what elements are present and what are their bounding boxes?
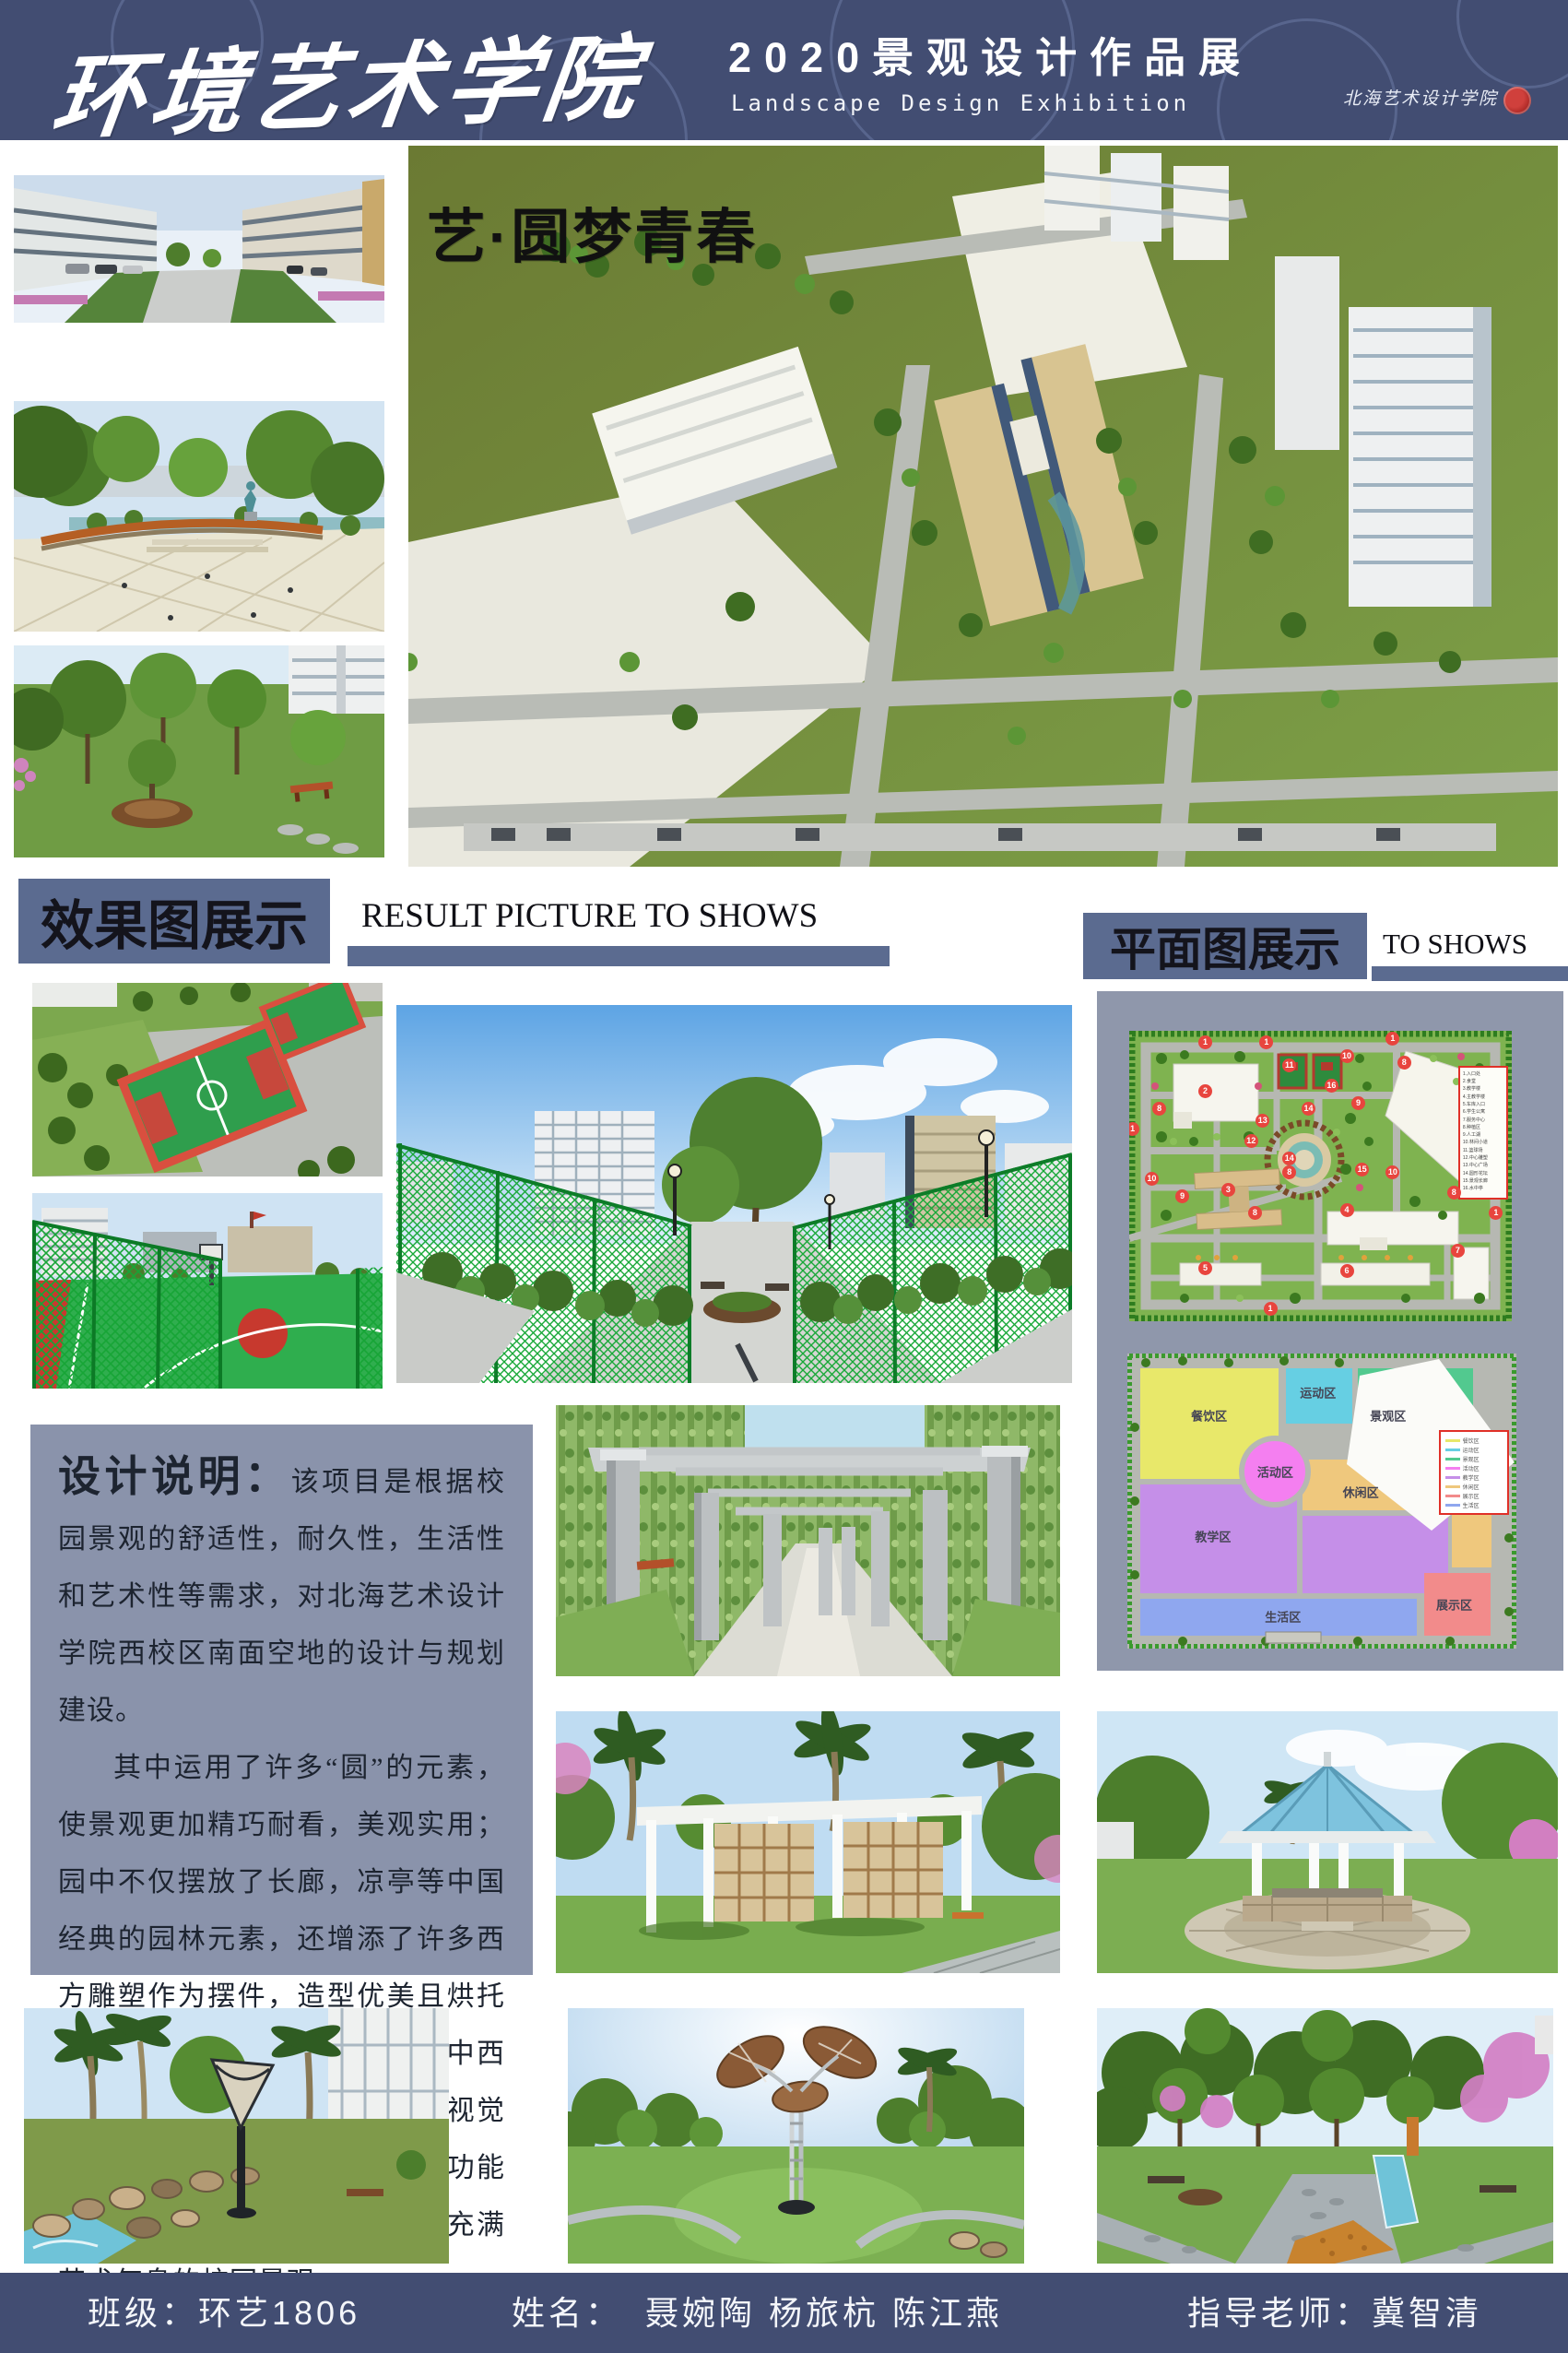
zone-legend-label: 餐饮区 — [1463, 1437, 1480, 1445]
render-pergola-corridor — [556, 1405, 1060, 1676]
college-title: 环境艺术学院 — [45, 3, 651, 140]
plans-panel: 1.入口处2.食堂3.教学楼4.主教学楼5.车库入口6.学生公寓7.服务中心8.… — [1097, 991, 1563, 1671]
zone-legend-label: 活动区 — [1463, 1464, 1480, 1472]
zone-label: 景观区 — [1370, 1407, 1406, 1425]
zone-legend-label: 景观区 — [1463, 1455, 1480, 1463]
exhibition-title-cn: 2020景观设计作品展 — [728, 24, 1253, 84]
zone-legend-label: 教学区 — [1463, 1473, 1480, 1482]
render-garden-path — [1097, 2008, 1553, 2264]
plan-marker: 1 — [1385, 1032, 1399, 1046]
site-plan-markers: 111111234567888889910101011121314141516 — [1129, 1031, 1512, 1321]
footer-bar: 班级：环艺1806 姓名： 聂婉陶 杨旅杭 陈江燕 指导老师：冀智清 — [0, 2273, 1568, 2353]
zoning-legend-row: 展示区 — [1445, 1491, 1503, 1500]
zone-color-swatch — [1445, 1495, 1460, 1497]
render-lawn-garden — [14, 645, 384, 857]
design-note-panel: 设计说明：该项目是根据校园景观的舒适性，耐久性，生活性和艺术性等需求，对北海艺术… — [30, 1425, 533, 1975]
zoning-legend-row: 景观区 — [1445, 1454, 1503, 1463]
render-court-fence — [32, 1193, 383, 1389]
zone-color-swatch — [1445, 1476, 1460, 1479]
plan-marker: 14 — [1302, 1102, 1315, 1116]
zone-label: 休闲区 — [1343, 1484, 1379, 1501]
results-title-en: RESULT PICTURE TO SHOWS — [361, 896, 818, 936]
footer-name-label: 姓名： — [512, 2273, 622, 2353]
plans-underline-bar — [1372, 966, 1568, 981]
plan-marker: 8 — [1152, 1102, 1166, 1116]
render-walkway — [396, 1005, 1072, 1383]
plan-marker: 7 — [1451, 1244, 1465, 1258]
plan-marker: 13 — [1256, 1114, 1269, 1128]
zone-color-swatch — [1445, 1485, 1460, 1488]
swirl-decoration — [1456, 0, 1568, 89]
plan-marker: 16 — [1325, 1079, 1338, 1093]
results-underline-bar — [348, 946, 890, 966]
zone-legend-label: 展示区 — [1463, 1492, 1480, 1500]
plan-marker: 5 — [1198, 1261, 1212, 1275]
render-palm-stream — [24, 2008, 449, 2264]
plan-marker: 1 — [1198, 1035, 1212, 1049]
plan-marker: 4 — [1340, 1203, 1354, 1217]
plan-marker: 10 — [1145, 1172, 1159, 1186]
plan-marker: 14 — [1282, 1152, 1296, 1165]
plan-marker: 15 — [1355, 1163, 1369, 1176]
zone-label: 展示区 — [1436, 1596, 1472, 1614]
zoning-legend-row: 运动区 — [1445, 1445, 1503, 1454]
exhibition-poster: 环境艺术学院 2020景观设计作品展 Landscape Design Exhi… — [0, 0, 1568, 2353]
render-court-aerial — [32, 983, 383, 1176]
college-signature-text: 北海艺术设计学院 — [1343, 89, 1498, 109]
plan-marker: 2 — [1198, 1084, 1212, 1098]
results-section-header: 效果图展示 — [18, 879, 330, 964]
render-hero-aerial: 艺·圆梦青春 — [408, 146, 1558, 867]
plan-marker: 10 — [1340, 1049, 1354, 1063]
render-plaza-sculpture — [14, 401, 384, 632]
plans-title-en: TO SHOWS — [1383, 928, 1527, 961]
zoning-legend-row: 活动区 — [1445, 1463, 1503, 1472]
site-plan: 1.入口处2.食堂3.教学楼4.主教学楼5.车库入口6.学生公寓7.服务中心8.… — [1129, 1031, 1512, 1321]
plan-marker: 10 — [1385, 1165, 1399, 1179]
zone-label: 生活区 — [1265, 1607, 1301, 1625]
zoning-legend: 餐饮区运动区景观区活动区教学区休闲区展示区生活区 — [1439, 1430, 1509, 1515]
zone-label: 运动区 — [1300, 1383, 1336, 1401]
plan-marker: 1 — [1259, 1035, 1273, 1049]
plan-marker: 8 — [1447, 1186, 1461, 1200]
plan-marker: 6 — [1340, 1264, 1354, 1278]
plans-section-header: 平面图展示 — [1083, 913, 1367, 979]
plan-marker: 1 — [1489, 1206, 1503, 1220]
footer-names: 聂婉陶 杨旅杭 陈江燕 — [645, 2273, 1003, 2353]
render-street-view — [14, 175, 384, 323]
exhibition-title-en: Landscape Design Exhibition — [731, 90, 1190, 116]
college-signature: 北海艺术设计学院 — [1343, 85, 1531, 114]
plan-marker: 1 — [1129, 1122, 1139, 1136]
render-white-pergola — [556, 1711, 1060, 1973]
college-seal-icon — [1503, 87, 1531, 114]
zoning-legend-row: 休闲区 — [1445, 1482, 1503, 1491]
plan-marker: 8 — [1282, 1165, 1296, 1179]
zone-legend-label: 运动区 — [1463, 1446, 1480, 1454]
hero-parking — [464, 823, 1496, 851]
render-metal-flower — [568, 2008, 1024, 2264]
plan-marker: 8 — [1248, 1206, 1262, 1220]
plans-title-cn: 平面图展示 — [1110, 913, 1340, 979]
zone-color-swatch — [1445, 1467, 1460, 1470]
zone-label: 餐饮区 — [1191, 1407, 1227, 1425]
render-gazebo — [1097, 1711, 1558, 1973]
plan-marker: 11 — [1282, 1058, 1296, 1072]
design-note-para1: 该项目是根据校园景观的舒适性，耐久性，生活性和艺术性等需求，对北海艺术设计学院西… — [58, 1467, 505, 1726]
plan-marker: 8 — [1397, 1056, 1411, 1070]
zone-color-swatch — [1445, 1448, 1460, 1451]
zone-legend-label: 生活区 — [1463, 1501, 1480, 1509]
zone-color-swatch — [1445, 1458, 1460, 1460]
plan-marker: 9 — [1351, 1096, 1365, 1110]
header-bar: 环境艺术学院 2020景观设计作品展 Landscape Design Exhi… — [0, 0, 1568, 140]
zoning-legend-row: 生活区 — [1445, 1500, 1503, 1509]
plan-marker: 3 — [1221, 1183, 1235, 1197]
zone-label: 教学区 — [1195, 1528, 1231, 1545]
zone-legend-label: 休闲区 — [1463, 1483, 1480, 1491]
plan-marker: 12 — [1244, 1134, 1258, 1148]
plan-marker: 9 — [1175, 1189, 1189, 1203]
zoning-diagram: 餐饮区 运动区 景观区 活动区 教学区 休闲区 展示区 生活区 餐饮区运动区景观… — [1127, 1354, 1516, 1649]
design-note-label: 设计说明： — [58, 1453, 291, 1500]
zoning-legend-row: 餐饮区 — [1445, 1436, 1503, 1445]
zone-label: 活动区 — [1257, 1463, 1293, 1481]
footer-teacher: 指导老师：冀智清 — [1187, 2273, 1482, 2353]
footer-class: 班级：环艺1806 — [88, 2273, 360, 2353]
results-title-cn: 效果图展示 — [41, 882, 308, 960]
zone-color-swatch — [1445, 1504, 1460, 1507]
zone-color-swatch — [1445, 1439, 1460, 1442]
zoning-legend-row: 教学区 — [1445, 1472, 1503, 1482]
hero-slogan: 艺·圆梦青春 — [427, 190, 758, 275]
plan-marker: 1 — [1264, 1302, 1278, 1316]
